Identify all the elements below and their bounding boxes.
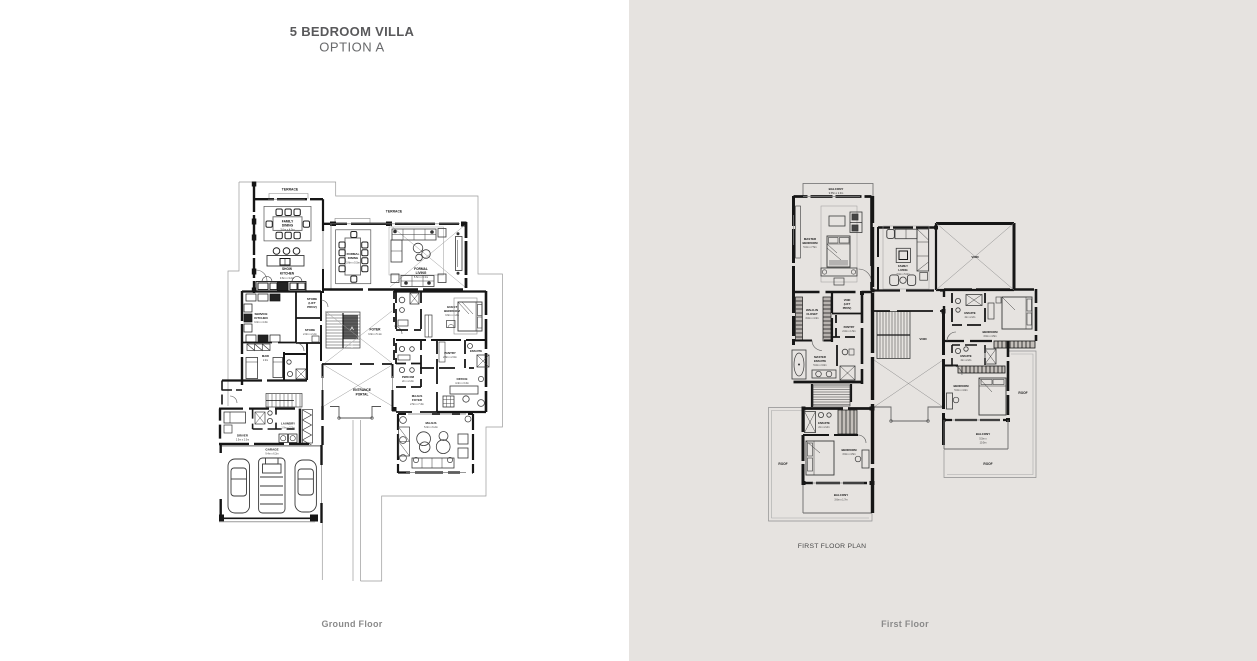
svg-text:BEDROOM: BEDROOM xyxy=(982,330,998,334)
svg-text:MAJLIS: MAJLIS xyxy=(425,421,436,425)
svg-text:5.5m x 6.3m: 5.5m x 6.3m xyxy=(414,275,428,279)
svg-text:5 BEDROOM VILLA: 5 BEDROOM VILLA xyxy=(290,24,415,39)
svg-text:OFFICE: OFFICE xyxy=(457,377,468,381)
svg-text:First Floor: First Floor xyxy=(881,619,929,629)
svg-text:BEDROOM: BEDROOM xyxy=(841,448,857,452)
svg-text:PORTAL: PORTAL xyxy=(356,393,369,397)
svg-text:ENSUITE: ENSUITE xyxy=(960,354,972,358)
svg-text:5.5m x: 5.5m x xyxy=(979,438,987,441)
svg-text:Ground Floor: Ground Floor xyxy=(321,619,382,629)
svg-text:PROV): PROV) xyxy=(307,305,317,309)
svg-text:3.6m x 1.7m: 3.6m x 1.7m xyxy=(834,499,847,502)
svg-text:ROOF: ROOF xyxy=(1018,391,1027,395)
svg-text:ENSUITE: ENSUITE xyxy=(470,349,482,353)
svg-text:3.6m x 4.2m: 3.6m x 4.2m xyxy=(445,314,459,317)
svg-text:VOID: VOID xyxy=(971,255,979,259)
svg-text:KITCHEN: KITCHEN xyxy=(254,316,267,320)
svg-text:MAID: MAID xyxy=(262,354,269,358)
svg-text:3.6m x 4.5m: 3.6m x 4.5m xyxy=(983,335,996,338)
svg-text:STORE: STORE xyxy=(305,328,315,332)
svg-text:VOID: VOID xyxy=(844,298,851,302)
svg-text:CLOSET: CLOSET xyxy=(806,312,818,316)
svg-text:PANTRY: PANTRY xyxy=(444,351,456,355)
svg-text:DINING: DINING xyxy=(282,224,294,228)
svg-text:OPTION A: OPTION A xyxy=(319,40,384,55)
svg-text:10.5m: 10.5m xyxy=(980,442,987,445)
svg-text:ENSUITE: ENSUITE xyxy=(964,311,976,315)
svg-text:ENTRANCE: ENTRANCE xyxy=(353,388,371,392)
svg-text:2.5m x 7.3m: 2.5m x 7.3m xyxy=(410,403,424,406)
svg-text:3.6m x 4.5m: 3.6m x 4.5m xyxy=(842,453,855,456)
svg-text:GARAGE: GARAGE xyxy=(265,448,278,452)
svg-text:4.3m x 3.3m: 4.3m x 3.3m xyxy=(455,382,469,385)
svg-text:3.0m x 4.3m: 3.0m x 4.3m xyxy=(254,321,268,324)
svg-text:2.0m x 2.2m: 2.0m x 2.2m xyxy=(303,333,317,336)
svg-text:5.0m x 7.5m: 5.0m x 7.5m xyxy=(803,246,816,249)
svg-text:BALCONY: BALCONY xyxy=(829,187,844,191)
svg-text:2.0m x 1.5m: 2.0m x 1.5m xyxy=(842,330,855,333)
svg-text:2m x 2.2m: 2m x 2.2m xyxy=(402,380,414,383)
svg-text:9.4m x 6.2m: 9.4m x 6.2m xyxy=(265,453,278,456)
svg-text:LIVING: LIVING xyxy=(898,268,907,272)
svg-text:ROOF: ROOF xyxy=(778,462,787,466)
svg-text:VOID: VOID xyxy=(919,337,927,341)
svg-text:2m x 2.2m: 2m x 2.2m xyxy=(965,317,976,319)
svg-text:LIVING: LIVING xyxy=(416,271,427,275)
svg-text:2m x 2.2m: 2m x 2.2m xyxy=(818,426,829,429)
svg-text:FIRST FLOOR PLAN: FIRST FLOOR PLAN xyxy=(798,543,866,550)
svg-text:3.6m x 4.5m: 3.6m x 4.5m xyxy=(280,228,294,232)
svg-text:FOYER: FOYER xyxy=(412,398,423,402)
svg-text:DRIVER: DRIVER xyxy=(237,434,249,438)
svg-text:5.0m x 6.2m: 5.0m x 6.2m xyxy=(424,426,438,429)
svg-text:BEDROOM: BEDROOM xyxy=(953,384,969,388)
svg-text:KITCHEN: KITCHEN xyxy=(280,272,295,276)
svg-text:5.0m x 4.0m: 5.0m x 4.0m xyxy=(954,389,967,392)
svg-text:ENSUITE: ENSUITE xyxy=(818,421,830,425)
svg-text:BEDROOM: BEDROOM xyxy=(802,241,818,245)
svg-text:LAUNDRY: LAUNDRY xyxy=(281,422,295,426)
svg-text:3.0m x 4.3m: 3.0m x 4.3m xyxy=(805,317,818,320)
svg-text:3.9m x 5.1m: 3.9m x 5.1m xyxy=(368,333,382,336)
svg-text:5.0m x 3.0m: 5.0m x 3.0m xyxy=(813,364,826,367)
svg-text:ENSUITE: ENSUITE xyxy=(814,359,826,363)
svg-text:BALCONY: BALCONY xyxy=(976,432,990,436)
svg-text:BALCONY: BALCONY xyxy=(834,493,848,497)
svg-text:(LIFT: (LIFT xyxy=(844,302,851,306)
svg-text:DINING: DINING xyxy=(348,256,359,260)
svg-text:FOYER: FOYER xyxy=(370,328,382,332)
svg-text:2.5m x 2.5m: 2.5m x 2.5m xyxy=(236,439,249,442)
svg-text:3.6m x 5.5m: 3.6m x 5.5m xyxy=(346,262,360,265)
svg-text:3.6m x 3.2m: 3.6m x 3.2m xyxy=(280,276,294,280)
svg-text:TERRACE: TERRACE xyxy=(386,210,403,214)
svg-text:2m x 2.2m: 2m x 2.2m xyxy=(961,360,972,362)
svg-text:PANTRY: PANTRY xyxy=(844,325,855,329)
svg-text:TERRACE: TERRACE xyxy=(282,188,299,192)
svg-text:9.55m x 2.0m: 9.55m x 2.0m xyxy=(829,192,843,195)
svg-text:PROV): PROV) xyxy=(843,306,852,310)
svg-text:1.9m x 2.7m: 1.9m x 2.7m xyxy=(281,427,294,430)
svg-text:PWD RM: PWD RM xyxy=(402,375,415,379)
svg-text:SHOW: SHOW xyxy=(282,267,292,271)
svg-text:3.9m x 5.0m: 3.9m x 5.0m xyxy=(896,273,909,276)
svg-text:ROOF: ROOF xyxy=(983,462,992,466)
svg-text:2.2m: 2.2m xyxy=(263,360,268,362)
